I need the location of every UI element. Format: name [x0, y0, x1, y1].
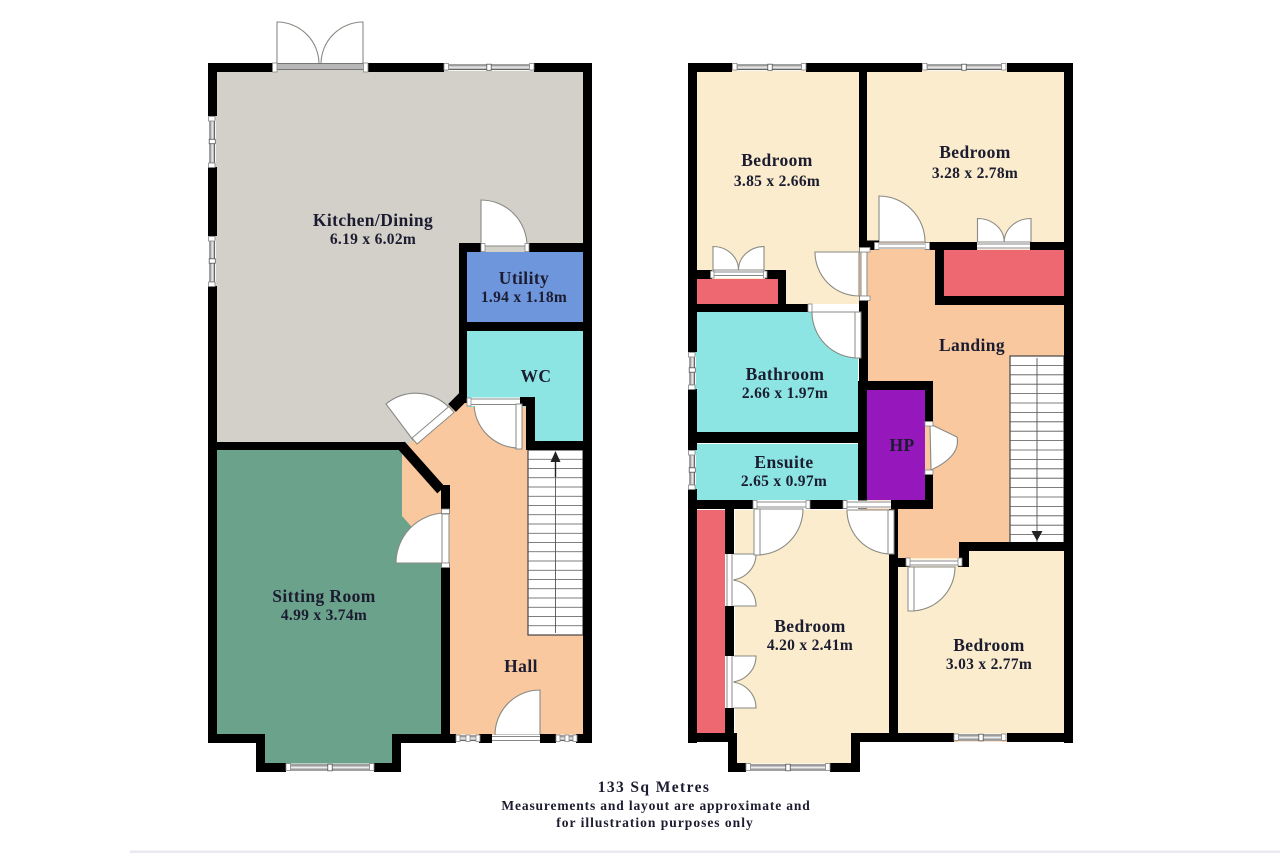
svg-text:Bedroom: Bedroom: [741, 150, 813, 170]
svg-text:2.65 x 0.97m: 2.65 x 0.97m: [741, 473, 827, 490]
svg-text:Bedroom: Bedroom: [939, 142, 1011, 162]
svg-text:Kitchen/Dining: Kitchen/Dining: [313, 210, 433, 230]
svg-text:133 Sq Metres: 133 Sq Metres: [598, 779, 711, 796]
svg-text:3.28 x 2.78m: 3.28 x 2.78m: [932, 165, 1018, 182]
svg-text:Measurements and layout are ap: Measurements and layout are approximate …: [501, 798, 810, 813]
svg-text:Sitting Room: Sitting Room: [272, 586, 376, 606]
svg-text:3.85 x 2.66m: 3.85 x 2.66m: [734, 173, 820, 190]
svg-text:Ensuite: Ensuite: [754, 452, 813, 472]
svg-text:4.99 x 3.74m: 4.99 x 3.74m: [281, 607, 367, 624]
svg-text:Hall: Hall: [504, 656, 538, 676]
svg-text:6.19 x 6.02m: 6.19 x 6.02m: [330, 231, 416, 248]
svg-text:2.66 x 1.97m: 2.66 x 1.97m: [742, 385, 828, 402]
svg-text:HP: HP: [889, 435, 914, 455]
svg-text:1.94 x 1.18m: 1.94 x 1.18m: [481, 289, 567, 306]
svg-text:Bedroom: Bedroom: [953, 635, 1025, 655]
svg-text:Utility: Utility: [499, 268, 549, 288]
svg-text:for illustration purposes only: for illustration purposes only: [556, 815, 753, 830]
svg-text:Bedroom: Bedroom: [774, 616, 846, 636]
svg-text:3.03 x 2.77m: 3.03 x 2.77m: [946, 656, 1032, 673]
svg-text:4.20 x 2.41m: 4.20 x 2.41m: [767, 637, 853, 654]
svg-text:WC: WC: [521, 366, 552, 386]
svg-text:Bathroom: Bathroom: [746, 364, 825, 384]
svg-text:Landing: Landing: [939, 335, 1005, 355]
